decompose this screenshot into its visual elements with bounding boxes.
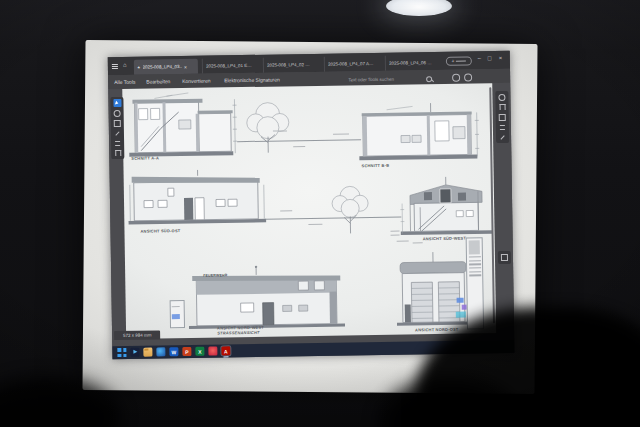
minimize-button[interactable]: – xyxy=(478,55,481,61)
share-icon[interactable] xyxy=(464,73,472,81)
right-panel-rail xyxy=(495,91,509,143)
star-icon[interactable]: ★ xyxy=(137,65,141,70)
extra-panel-icon-holder xyxy=(498,251,511,264)
acrobat-icon[interactable]: A xyxy=(221,346,230,355)
search-field[interactable] xyxy=(346,74,432,85)
photos-icon[interactable] xyxy=(208,346,217,355)
blue-annotation xyxy=(457,298,464,303)
hamburger-menu-icon[interactable] xyxy=(112,63,118,70)
create-pill-button[interactable]: + xyxy=(446,56,472,65)
annotation-bar xyxy=(391,235,400,236)
page-size-value: 572 x 984 mm xyxy=(123,333,152,338)
tree-sketch-1 xyxy=(240,96,295,155)
home-icon[interactable]: ⌂ xyxy=(123,62,127,68)
menu-elektronische-signaturen[interactable]: Elektronische Signaturen xyxy=(224,76,280,83)
annotation-bar xyxy=(413,242,423,243)
windows-start-icon[interactable] xyxy=(117,348,126,357)
select-tool-icon[interactable] xyxy=(113,99,121,107)
elevation-sued-ost-drawing xyxy=(128,169,267,227)
elevation-sued-ost-label: ANSICHT SÜD-OST xyxy=(140,228,180,234)
powerpoint-icon[interactable]: P xyxy=(182,347,191,356)
powerpoint-letter: P xyxy=(185,348,188,354)
projected-desktop: ⌂ ★ 2025-008_LP4_03.. × 2025-008_LP4_01 … xyxy=(108,51,515,359)
annotation-bar xyxy=(293,146,305,147)
file-explorer-icon[interactable] xyxy=(143,348,152,357)
tab-document-5[interactable]: 2025-008_LP4_06 Rodge... xyxy=(385,55,441,71)
tab-document-3[interactable]: 2025-008_LP4_02 Dachge... xyxy=(263,57,321,73)
annotation-bar xyxy=(308,224,322,225)
highlight-tool-icon[interactable] xyxy=(113,129,121,137)
hand-tool-icon[interactable] xyxy=(113,109,121,117)
tab-label: 2025-008_LP4_06 Rodge... xyxy=(389,60,435,66)
menu-bearbeiten[interactable]: Bearbeiten xyxy=(146,78,170,84)
blue-stamp-annotation xyxy=(172,314,180,319)
garage-elevation-drawing xyxy=(396,246,471,333)
room-photo: ⌂ ★ 2025-008_LP4_03.. × 2025-008_LP4_01 … xyxy=(0,0,640,427)
feuerwehr-elevation-drawing xyxy=(186,261,347,334)
tab-document-active[interactable]: ★ 2025-008_LP4_03.. × xyxy=(134,59,198,75)
annotation-bar xyxy=(397,240,409,241)
document-area: SCHNITT A-A xyxy=(108,83,514,346)
close-tab-icon[interactable]: × xyxy=(184,63,187,69)
section-bb-drawing xyxy=(356,100,481,168)
excel-icon[interactable]: X xyxy=(195,347,204,356)
word-icon[interactable]: W xyxy=(169,347,178,356)
close-window-button[interactable]: × xyxy=(499,55,503,61)
tree-sketch-2 xyxy=(328,181,373,236)
tab-label: 2025-008_LP4_02 Dachge... xyxy=(267,62,313,68)
menu-alle-tools[interactable]: Alle Tools xyxy=(114,79,135,85)
elevation-sued-west-drawing xyxy=(400,172,493,243)
tab-label: 2025-008_LP4_01 Erdges... xyxy=(206,63,252,69)
sign-tool-icon[interactable] xyxy=(114,139,122,147)
page-size-status: 572 x 984 mm xyxy=(114,330,160,340)
tab-label: 2025-008_LP4_03.. xyxy=(142,64,182,70)
plus-icon: + xyxy=(451,58,454,64)
comment-tool-icon[interactable] xyxy=(113,119,121,127)
annotation-bar xyxy=(172,306,180,307)
media-player-icon[interactable] xyxy=(130,348,139,357)
tab-document-2[interactable]: 2025-008_LP4_01 Erdges... xyxy=(202,58,260,74)
layers-panel-icon[interactable] xyxy=(498,133,506,141)
excel-letter: X xyxy=(198,348,201,354)
signature-panel-icon[interactable] xyxy=(500,253,508,261)
annotation-bar xyxy=(280,210,292,211)
attachments-panel-icon[interactable] xyxy=(498,123,506,131)
ceiling-lamp xyxy=(386,0,452,16)
active-app-indicator xyxy=(223,356,228,357)
feuerwehr-sign-text: FEUERWEHR xyxy=(203,273,227,277)
menu-konvertieren[interactable]: Konvertieren xyxy=(182,78,210,84)
bookmarks-panel-icon[interactable] xyxy=(498,103,506,111)
annotation-bar xyxy=(391,231,400,232)
tab-document-4[interactable]: 2025-008_LP4_07 Abbru... xyxy=(324,56,382,72)
section-aa-label: SCHNITT A-A xyxy=(131,155,159,160)
section-bb-label: SCHNITT B-B xyxy=(361,163,389,168)
search-input[interactable] xyxy=(346,74,424,85)
comments-panel-icon[interactable] xyxy=(498,93,506,101)
thumbnails-panel-icon[interactable] xyxy=(498,113,506,121)
cyan-annotation xyxy=(456,312,466,318)
maximize-button[interactable]: □ xyxy=(488,55,492,61)
annotation-bar xyxy=(273,130,287,131)
left-tool-rail xyxy=(110,97,124,159)
section-aa-drawing xyxy=(126,89,239,165)
edge-icon[interactable] xyxy=(156,347,165,356)
tools-circle-icon[interactable] xyxy=(452,74,460,82)
acrobat-letter: A xyxy=(224,348,228,354)
stamp-tool-icon[interactable] xyxy=(114,149,122,157)
strassenansicht-label: STRASSENANSICHT xyxy=(217,330,260,336)
pdf-sheet: SCHNITT A-A xyxy=(122,83,496,339)
tab-label: 2025-008_LP4_07 Abbru... xyxy=(328,61,374,67)
search-icon xyxy=(426,76,432,82)
title-block-thumbnail xyxy=(469,240,480,254)
elevation-sued-west-label: ANSICHT SÜD-WEST xyxy=(423,236,466,242)
word-letter: W xyxy=(171,349,176,355)
annotation-bar xyxy=(333,133,349,134)
